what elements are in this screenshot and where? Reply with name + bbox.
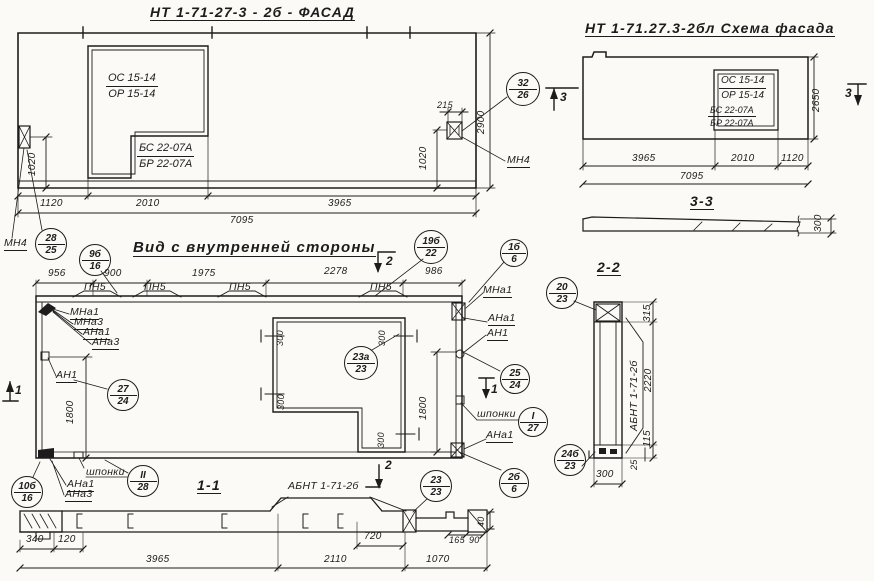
section-marker: 2	[386, 255, 393, 267]
callout-sheet: 27	[519, 422, 547, 438]
callout-number: 10б	[12, 477, 42, 494]
dim-label: 1800	[419, 397, 429, 420]
component-mark-fraction: БС 22-07АБР 22-07А	[708, 105, 756, 129]
part-label: МН4	[507, 155, 530, 168]
part-label: МН4	[4, 238, 27, 251]
callout-badge: 1б6	[500, 239, 528, 267]
dim-label: 340	[26, 535, 44, 545]
callout-sheet: 6	[501, 253, 527, 268]
fraction-top: БС 22-07А	[137, 142, 194, 157]
dim-label: 120	[58, 535, 76, 545]
dim-label: 2278	[324, 267, 347, 277]
part-label: ПН5	[370, 282, 392, 293]
drawing-title: 1-1	[197, 478, 221, 494]
part-label: АНа1	[486, 430, 513, 443]
callout-sheet: 16	[80, 260, 110, 277]
callout-sheet: 23	[421, 486, 451, 503]
callout-badge: 2323	[420, 470, 452, 502]
fraction-top: БС 22-07А	[708, 105, 756, 117]
callout-number: II	[128, 466, 158, 483]
part-label: АНа3	[92, 337, 119, 350]
dim-label: 300	[377, 432, 386, 448]
part-label: шпонки	[86, 467, 125, 478]
fraction-bottom: ОР 15-14	[719, 89, 766, 102]
section-marker: 3	[560, 91, 567, 103]
dim-label: 90	[469, 536, 480, 545]
dim-label: 1120	[40, 199, 63, 209]
fraction-bottom: БР 22-07А	[137, 157, 194, 171]
callout-sheet: 16	[12, 492, 42, 509]
callout-number: I	[519, 408, 547, 424]
dim-label: 720	[364, 532, 382, 542]
dim-label: 2900	[477, 111, 487, 134]
callout-badge: 2825	[35, 228, 67, 260]
dim-label: 956	[48, 269, 66, 279]
callout-sheet: 23	[345, 363, 377, 381]
section-marker: 1	[491, 383, 498, 395]
callout-badge: II28	[127, 465, 159, 497]
callout-number: 23	[421, 471, 451, 488]
dim-label: 3965	[146, 555, 169, 565]
dim-label: 986	[425, 267, 443, 277]
callout-badge: 2023	[546, 277, 578, 309]
callout-badge: 3226	[506, 72, 540, 106]
part-label: АН1	[56, 370, 77, 383]
callout-badge: 2б6	[499, 468, 529, 498]
callout-number: 2б	[500, 469, 528, 485]
fraction-top: ОС 15-14	[106, 72, 158, 87]
callout-number: 23а	[345, 347, 377, 365]
callout-badge: 24б23	[554, 444, 586, 476]
callout-sheet: 28	[128, 481, 158, 498]
annotation-layer: НТ 1-71-27-3 - 2б - ФАСАДНТ 1-71.27.3-2б…	[0, 0, 874, 581]
dim-label: 1120	[781, 154, 804, 164]
dim-label: 1975	[192, 269, 215, 279]
callout-badge: I27	[518, 407, 548, 437]
callout-number: 1б	[501, 240, 527, 255]
drawing-title: Вид с внутренней стороны	[133, 240, 376, 257]
drawing-title: НТ 1-71.27.3-2бл Схема фасада	[585, 21, 835, 37]
callout-sheet: 24	[501, 379, 529, 395]
callout-sheet: 23	[547, 293, 577, 310]
part-label: АН1	[487, 328, 508, 341]
dim-label: 215	[437, 101, 453, 110]
dim-label: 1020	[28, 153, 38, 176]
callout-number: 20	[547, 278, 577, 295]
callout-badge: 19б22	[414, 230, 448, 264]
part-label: МНа1	[483, 285, 512, 298]
section-marker: 3	[845, 87, 852, 99]
dim-label: 165	[449, 536, 465, 545]
component-mark-fraction: ОС 15-14ОР 15-14	[719, 75, 766, 101]
callout-badge: 2724	[107, 379, 139, 411]
dim-label: 40	[477, 516, 486, 527]
part-label: ПН5	[144, 282, 166, 293]
dim-label: 2220	[644, 369, 654, 392]
dim-label: 2650	[812, 89, 822, 112]
dim-label: 115	[643, 430, 653, 447]
fraction-bottom: ОР 15-14	[106, 87, 158, 101]
callout-sheet: 26	[507, 89, 539, 107]
part-label: ПН5	[84, 282, 106, 293]
callout-sheet: 24	[108, 395, 138, 412]
part-label: АБНТ 1-71-2б	[629, 360, 640, 431]
dim-label: 25	[630, 459, 639, 470]
dim-label: 2010	[731, 154, 754, 164]
callout-badge: 9б16	[79, 244, 111, 276]
drawing-title: НТ 1-71-27-3 - 2б - ФАСАД	[150, 5, 355, 21]
callout-number: 27	[108, 380, 138, 397]
callout-sheet: 23	[555, 460, 585, 477]
dim-label: 2010	[136, 199, 159, 209]
callout-sheet: 22	[415, 247, 447, 265]
dim-label: 300	[276, 330, 285, 346]
callout-number: 32	[507, 73, 539, 91]
callout-badge: 23а23	[344, 346, 378, 380]
fraction-bottom: БР 22-07А	[708, 117, 756, 128]
callout-number: 25	[501, 365, 529, 381]
fraction-top: ОС 15-14	[719, 75, 766, 89]
dim-label: 300	[277, 394, 286, 410]
drawing-title: 3-3	[690, 194, 714, 210]
dim-label: 7095	[680, 172, 703, 182]
callout-number: 28	[36, 229, 66, 246]
callout-number: 24б	[555, 445, 585, 462]
blueprint-canvas: НТ 1-71-27-3 - 2б - ФАСАДНТ 1-71.27.3-2б…	[0, 0, 874, 581]
dim-label: 300	[596, 470, 614, 480]
part-label: АНа3	[65, 489, 92, 502]
component-mark-fraction: БС 22-07АБР 22-07А	[137, 142, 194, 170]
part-label: АНа1	[488, 313, 515, 326]
dim-label: 1020	[419, 147, 429, 170]
drawing-title: 2-2	[597, 260, 621, 276]
dim-label: 300	[378, 330, 387, 346]
callout-number: 9б	[80, 245, 110, 262]
callout-number: 19б	[415, 231, 447, 249]
dim-label: 3965	[632, 154, 655, 164]
part-label: АБНТ 1-71-2б	[288, 481, 359, 492]
section-marker: 2	[385, 459, 392, 471]
dim-label: 300	[814, 214, 824, 232]
part-label: ПН5	[229, 282, 251, 293]
callout-badge: 2524	[500, 364, 530, 394]
dim-label: 315	[643, 304, 653, 322]
dim-label: 1070	[426, 555, 449, 565]
part-label: шпонки	[477, 409, 516, 420]
component-mark-fraction: ОС 15-14ОР 15-14	[106, 72, 158, 100]
dim-label: 7095	[230, 216, 253, 226]
callout-badge: 10б16	[11, 476, 43, 508]
dim-label: 1800	[66, 401, 76, 424]
section-marker: 1	[15, 384, 22, 396]
callout-sheet: 6	[500, 483, 528, 499]
callout-sheet: 25	[36, 244, 66, 261]
dim-label: 2110	[324, 555, 347, 565]
dim-label: 3965	[328, 199, 351, 209]
